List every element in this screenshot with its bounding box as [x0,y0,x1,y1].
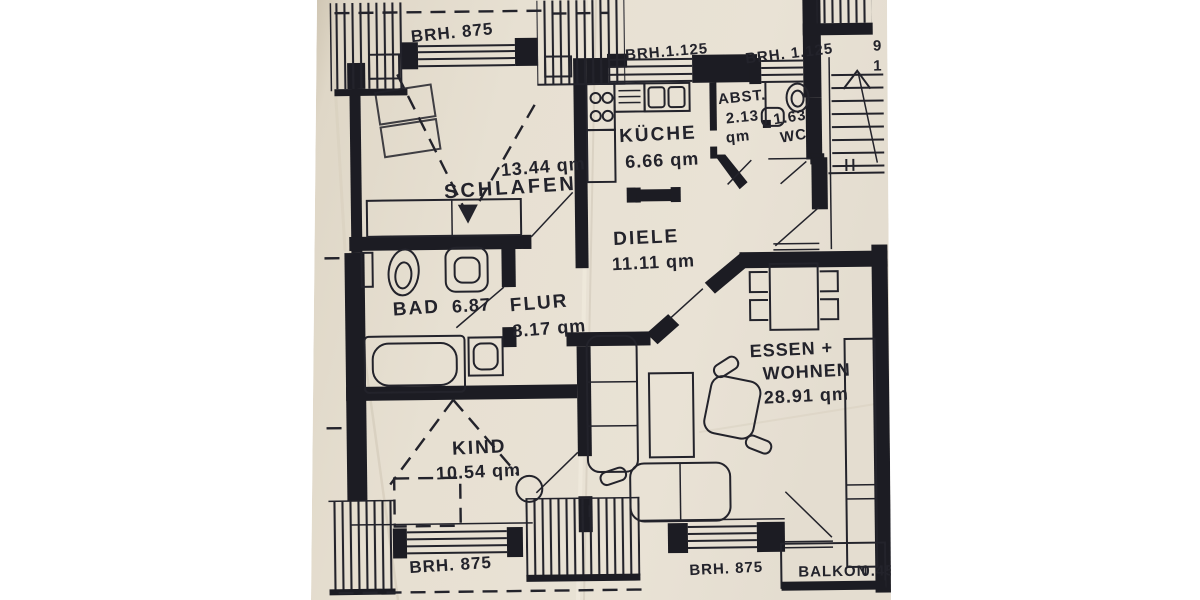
railing-top-left [330,2,406,91]
bad-name: BAD [392,297,440,321]
edge-digit-top: 9 [873,38,883,55]
brh-bottom-center: BRH. 875 [689,559,764,579]
abst-area-value: 2.13 [725,107,760,127]
wohnen-name-2: WOHNEN [762,360,851,384]
kind-name: KIND [452,436,507,460]
kueche-area: 6.66 qm [625,148,700,171]
diele-name: DIELE [613,226,680,250]
floor-plan-photo: 13.44 qm SCHLAFEN KÜCHE 6.66 qm ABST. 2.… [0,0,1200,600]
kueche-name: KÜCHE [619,122,697,147]
bad-area: 6.87 [451,294,491,316]
railing-top-right [816,0,871,23]
kind-area: 10.54 qm [435,460,521,484]
label-balkon: BALKON 0.45 [798,562,894,580]
balkon-area: 0.45 [861,562,894,579]
abst-area-unit: qm [725,127,751,146]
floor-plan-svg: 13.44 qm SCHLAFEN KÜCHE 6.66 qm ABST. 2.… [0,0,1200,600]
balcony-bottom-left [328,501,395,596]
balkon-name: BALKON [798,563,868,581]
paper-sheet: 13.44 qm SCHLAFEN KÜCHE 6.66 qm ABST. 2.… [311,0,895,600]
diele-area: 11.11 qm [611,250,695,274]
wohnen-name-1: ESSEN + [749,337,833,361]
wohnen-area: 28.91 qm [763,384,849,408]
edge-digit-bottom: 1 [873,58,883,75]
